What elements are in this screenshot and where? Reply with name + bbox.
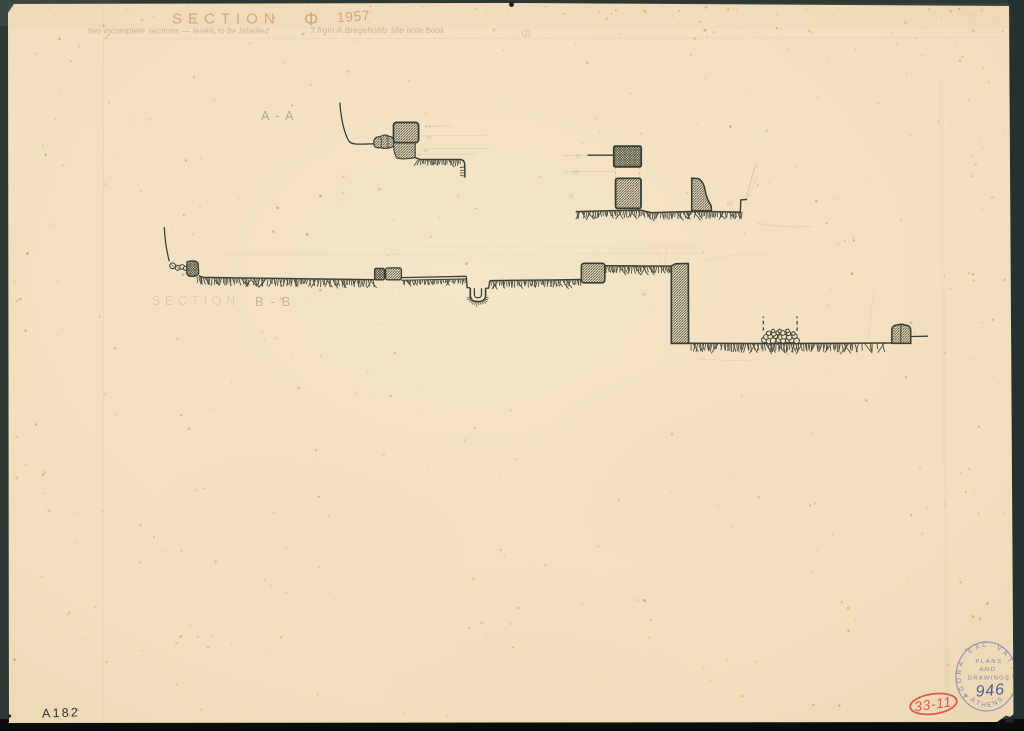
svg-text:O: O: [956, 677, 964, 683]
svg-text:1 + + +: 1 + + +: [425, 124, 439, 129]
svg-text:-20: -20: [571, 171, 578, 177]
svg-text:*: *: [1011, 694, 1014, 701]
svg-text:14: 14: [423, 148, 428, 153]
svg-text:AND: AND: [979, 667, 996, 673]
svg-text:B - B: B - B: [255, 294, 292, 309]
svg-text:PLANS: PLANS: [975, 659, 1002, 665]
svg-text:70: 70: [568, 195, 574, 201]
svg-text:72: 72: [426, 135, 431, 140]
svg-text:SECTION: SECTION: [172, 11, 281, 28]
svg-text:*: *: [965, 694, 968, 701]
svg-text:10: 10: [575, 154, 581, 160]
svg-text:SECTION: SECTION: [152, 294, 240, 308]
svg-text:1957: 1957: [336, 7, 370, 25]
svg-text:50: 50: [727, 202, 733, 208]
svg-text:? from A.Bregeholds site n: ? from A.Bregeholds site note book: [310, 26, 445, 35]
svg-text:two incomplete sections —: two incomplete sections — levels to be l…: [88, 27, 269, 36]
svg-text:A - A: A - A: [261, 109, 295, 123]
svg-text:946: 946: [975, 681, 1005, 700]
svg-text:C: C: [982, 642, 988, 649]
svg-text:A182: A182: [42, 705, 80, 720]
